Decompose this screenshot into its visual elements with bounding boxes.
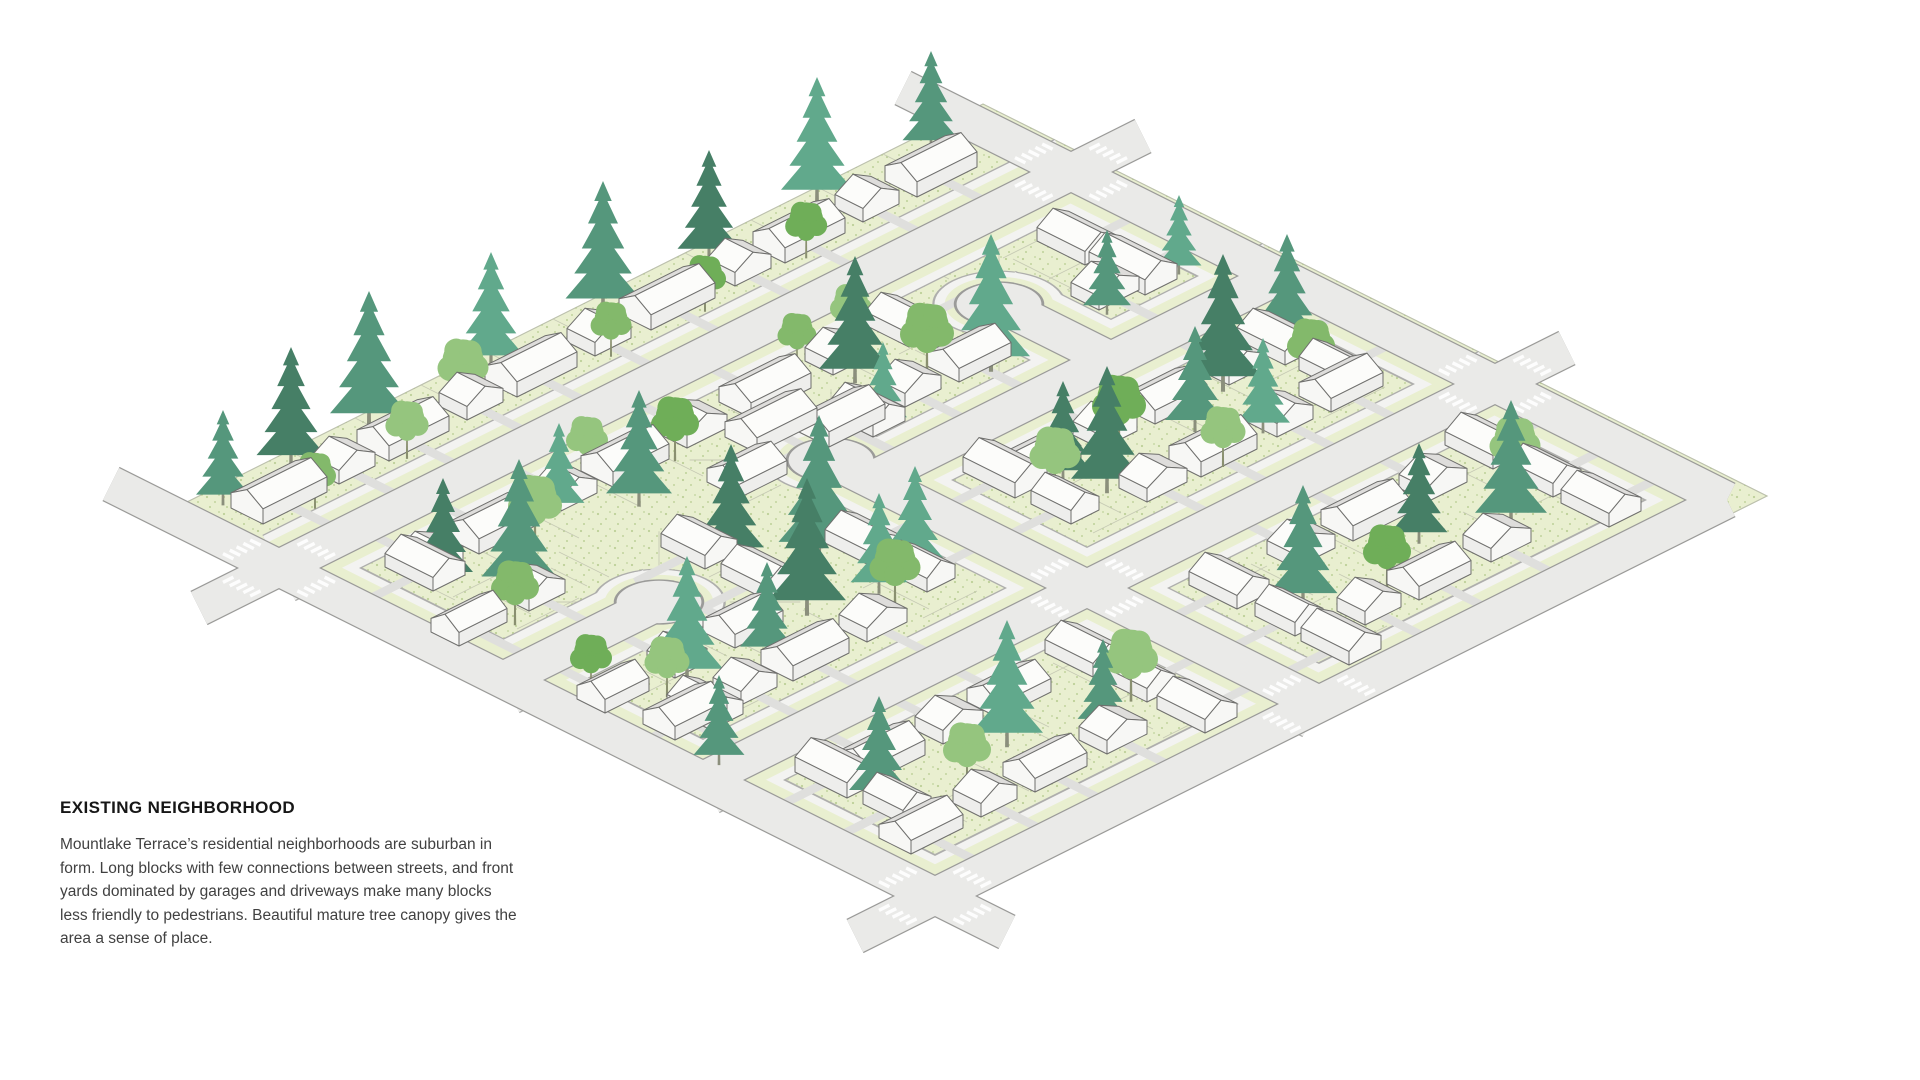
conifer-tree: [781, 77, 853, 204]
crosswalk-bar: [1358, 717, 1368, 722]
crosswalk-bar: [1365, 713, 1375, 718]
page: Isometric diagram of an existing suburba…: [0, 0, 1920, 1080]
crosswalk-bar: [1344, 723, 1354, 728]
conifer-tree: [257, 347, 326, 469]
caption-title: EXISTING NEIGHBORHOOD: [60, 798, 522, 818]
crosswalk-bar: [1337, 727, 1347, 732]
caption-body: Mountlake Terrace’s residential neighbor…: [60, 833, 522, 951]
crosswalk-bar: [1351, 720, 1361, 725]
caption-block: EXISTING NEIGHBORHOOD Mountlake Terrace’…: [60, 798, 522, 951]
